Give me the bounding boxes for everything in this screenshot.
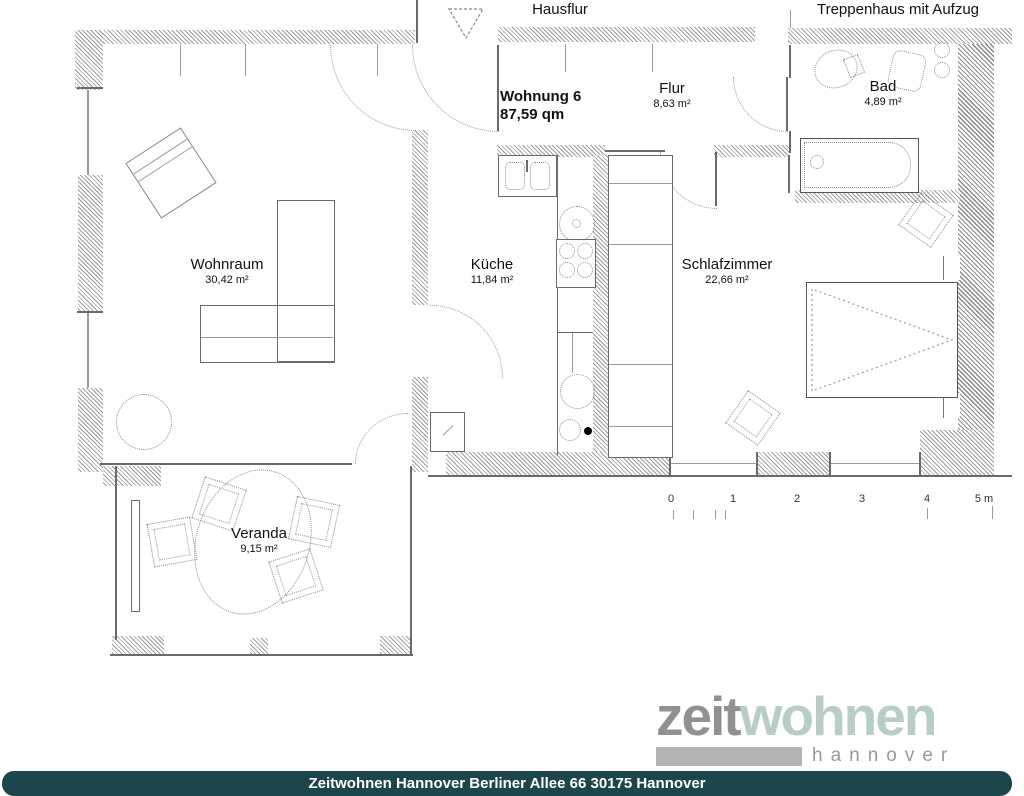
sofa-horizontal xyxy=(200,305,335,363)
wall-top-left xyxy=(93,30,415,44)
room-label-flur: Flur 8,63 m² xyxy=(622,80,722,111)
window-tick xyxy=(652,44,653,72)
logo-text-wohnen: wohnen xyxy=(740,685,936,747)
scale-tick xyxy=(927,508,928,519)
sink-drain xyxy=(572,219,581,228)
utility-box xyxy=(430,412,465,452)
burner xyxy=(577,243,593,259)
logo-subtitle-row: hannover xyxy=(656,745,1014,767)
burner xyxy=(559,262,575,278)
treppenhaus-label: Treppenhaus mit Aufzug xyxy=(793,1,1003,18)
room-label-veranda: Veranda 9,15 m² xyxy=(199,525,319,556)
scale-label: 2 xyxy=(794,493,800,505)
entrance-direction-marker xyxy=(446,6,486,44)
kitchen-counter-edge xyxy=(557,155,558,455)
logo-bar xyxy=(656,747,802,766)
scale-label: 1 xyxy=(730,493,736,505)
room-name: Flur xyxy=(622,80,722,98)
wall-left-middle xyxy=(78,175,103,312)
window-line-left-lower xyxy=(87,313,89,388)
footer-text: Zeitwohnen Hannover Berliner Allee 66 30… xyxy=(308,775,705,792)
right-wall-window-notch xyxy=(943,256,960,280)
scale-tick xyxy=(715,510,716,519)
room-name: Wohnraum xyxy=(162,256,292,274)
scale-tick xyxy=(693,510,694,519)
sink-basin xyxy=(505,162,525,190)
veranda-right-wall xyxy=(410,466,412,656)
wall-wohnraum-kueche-lower xyxy=(412,377,428,472)
veranda-left-wall xyxy=(115,466,117,640)
bad-corner-line xyxy=(788,155,790,193)
room-name: Bad xyxy=(833,78,933,96)
wall-hook xyxy=(934,62,950,78)
scale-label: 3 xyxy=(859,493,865,505)
bad-door-swing-arc xyxy=(733,77,788,132)
window-tick xyxy=(180,44,181,76)
room-name: Küche xyxy=(437,256,547,274)
logo-text-zeit: zeit xyxy=(656,685,740,747)
utility-box-mark xyxy=(443,425,454,436)
window-tick xyxy=(919,452,921,475)
window-sill-line xyxy=(77,311,103,313)
apartment-area: 87,59 qm xyxy=(500,106,581,124)
room-area: 8,63 m² xyxy=(622,98,722,111)
wohnraum-door-swing-arc xyxy=(330,45,416,131)
sofa-line xyxy=(201,337,333,338)
flur-wall-thin xyxy=(605,150,665,152)
room-name: Schlafzimmer xyxy=(652,256,802,274)
veranda-door-swing-arc xyxy=(355,413,408,464)
floor-plan-page: Hausflur Treppenhaus mit Aufzug Wohnung … xyxy=(0,0,1024,796)
scale-label: 0 xyxy=(668,493,674,505)
armchair xyxy=(125,127,216,218)
window-sill-line xyxy=(77,87,103,89)
scale-tick xyxy=(725,510,726,519)
room-label-bad: Bad 4,89 m² xyxy=(833,78,933,109)
window-tick xyxy=(245,44,246,76)
kueche-door-swing-arc xyxy=(430,305,503,378)
burner xyxy=(577,262,593,278)
room-area: 11,84 m² xyxy=(437,274,547,287)
bathtub-drain xyxy=(810,155,824,169)
faucet xyxy=(526,160,528,172)
window-line-bottom xyxy=(671,463,757,464)
room-label-kueche: Küche 11,84 m² xyxy=(437,256,547,287)
room-area: 22,66 m² xyxy=(652,274,802,287)
wall-flur-schlafzimmer xyxy=(714,145,790,157)
veranda-pier-bottom3 xyxy=(380,636,412,656)
shelf-line xyxy=(609,364,672,365)
wall-wohnraum-kueche-upper xyxy=(412,130,428,305)
window-line-bottom xyxy=(831,463,919,464)
company-logo: zeitwohnen hannover xyxy=(656,688,1014,767)
veranda-bottom-line xyxy=(110,654,413,656)
veranda-chair xyxy=(147,517,198,568)
veranda-pier-topleft xyxy=(103,466,161,486)
bad-wall-lower xyxy=(789,131,791,153)
room-name: Veranda xyxy=(199,525,319,543)
window-tick xyxy=(790,10,791,28)
bedroom-chair xyxy=(725,390,781,446)
kitchen-counter-divider xyxy=(572,333,573,373)
burner xyxy=(559,243,575,259)
wall-top-right xyxy=(788,28,1012,44)
sink-basin xyxy=(530,162,550,190)
small-round-fixture xyxy=(559,419,581,441)
apartment-bottom-line xyxy=(428,475,1012,477)
veranda-pier-bottom1 xyxy=(112,636,164,656)
wall-top-middle xyxy=(498,27,755,42)
scale-tick xyxy=(673,510,674,519)
wall-right-outer xyxy=(958,44,994,477)
window-line-left-upper xyxy=(87,90,89,175)
logo-subtitle: hannover xyxy=(802,745,955,767)
veranda-window xyxy=(131,500,140,612)
apartment-name: Wohnung 6 xyxy=(500,88,581,106)
footer-address-bar: Zeitwohnen Hannover Berliner Allee 66 30… xyxy=(2,771,1012,796)
plant xyxy=(116,394,172,450)
wohnraum-veranda-boundary xyxy=(100,463,352,465)
bad-wall-upper xyxy=(789,45,791,78)
round-fixture xyxy=(560,374,595,409)
logo-wordmark: zeitwohnen xyxy=(656,688,1014,744)
room-area: 30,42 m² xyxy=(162,274,292,287)
wall-hook xyxy=(934,42,950,58)
room-area: 4,89 m² xyxy=(833,96,933,109)
room-label-schlafzimmer: Schlafzimmer 22,66 m² xyxy=(652,256,802,287)
shelf-line xyxy=(609,426,672,427)
scale-tick xyxy=(992,506,993,519)
scale-label: 5 m xyxy=(975,493,993,505)
bathtub xyxy=(800,138,919,193)
bed-triangle xyxy=(807,283,957,397)
kitchen-counter-divider xyxy=(557,332,593,333)
wall-bottom-corner xyxy=(920,430,994,477)
room-area: 9,15 m² xyxy=(199,543,319,556)
room-label-wohnraum: Wohnraum 30,42 m² xyxy=(162,256,292,287)
apartment-title: Wohnung 6 87,59 qm xyxy=(500,88,581,124)
shelf-line xyxy=(609,183,672,184)
bed xyxy=(806,282,958,398)
stove xyxy=(556,239,596,288)
entrance-door-swing-arc xyxy=(412,45,499,132)
armchair-line xyxy=(133,139,187,175)
kitchen-sink-unit xyxy=(498,155,557,197)
entrance-side-wall xyxy=(416,0,418,43)
shelf-line xyxy=(609,244,672,245)
wardrobe xyxy=(608,155,673,458)
wall-kueche-schlafzimmer xyxy=(593,155,608,477)
scale-label: 4 xyxy=(924,493,930,505)
wall-left-corner xyxy=(75,30,103,90)
wall-left-lower xyxy=(78,388,103,472)
hausflur-label: Hausflur xyxy=(505,1,615,18)
window-tick xyxy=(565,44,566,72)
wall-bottom-seg2 xyxy=(757,452,830,475)
drain-point xyxy=(584,427,592,435)
